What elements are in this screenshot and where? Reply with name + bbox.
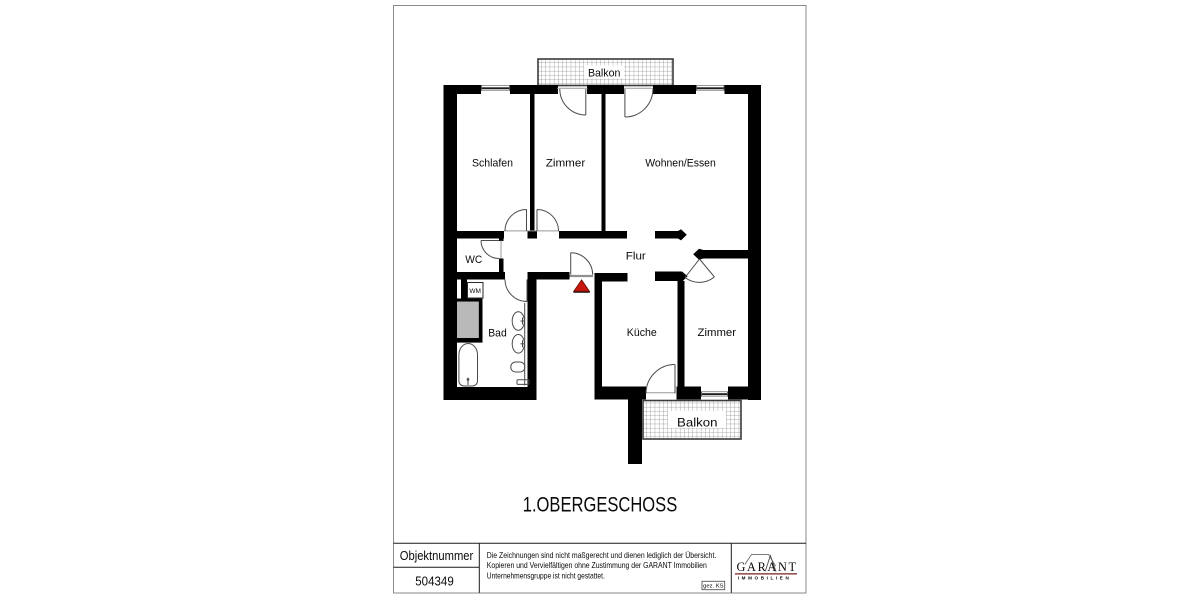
svg-text:gez. KS: gez. KS [703,584,723,590]
svg-text:Zimmer: Zimmer [546,157,586,169]
svg-text:Die Zeichnungen sind nicht maß: Die Zeichnungen sind nicht maßgerecht un… [487,550,717,560]
svg-text:Bad: Bad [488,327,507,339]
svg-text:Küche: Küche [627,327,657,339]
svg-text:504349: 504349 [415,574,454,589]
svg-text:Flur: Flur [626,250,646,262]
svg-text:Zimmer: Zimmer [698,327,737,339]
svg-text:Balkon: Balkon [588,68,621,80]
svg-text:Wohnen/Essen: Wohnen/Essen [645,158,716,170]
svg-text:Objektnummer: Objektnummer [400,548,474,563]
svg-text:IMMOBILIEN: IMMOBILIEN [738,576,790,581]
svg-text:Schlafen: Schlafen [472,157,513,169]
svg-text:WC: WC [465,254,482,266]
svg-text:1.OBERGESCHOSS: 1.OBERGESCHOSS [523,493,678,517]
svg-text:Unternehmensgruppe ist nicht g: Unternehmensgruppe ist nicht gestattet. [487,571,605,581]
svg-text:WM: WM [469,288,481,295]
svg-text:Balkon: Balkon [677,415,718,429]
svg-text:Kopieren und Vervielfältigen o: Kopieren und Vervielfältigen ohne Zustim… [487,560,707,570]
